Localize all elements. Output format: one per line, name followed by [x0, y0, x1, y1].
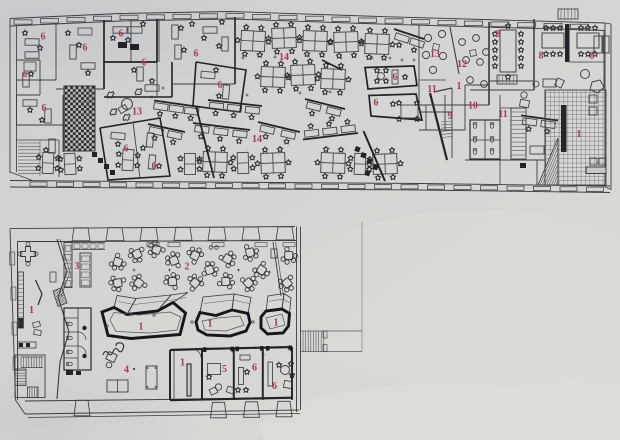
svg-text:8: 8 — [539, 51, 544, 62]
svg-text:10: 10 — [468, 101, 478, 112]
svg-text:3: 3 — [75, 261, 80, 272]
svg-text:6: 6 — [83, 43, 88, 54]
svg-text:1: 1 — [29, 305, 34, 316]
svg-text:13: 13 — [430, 49, 440, 60]
svg-text:6: 6 — [252, 363, 257, 374]
svg-text:8: 8 — [496, 29, 501, 40]
svg-text:12: 12 — [457, 59, 467, 70]
svg-text:6: 6 — [41, 32, 46, 43]
svg-text:5: 5 — [222, 364, 227, 375]
svg-text:6: 6 — [42, 103, 47, 114]
svg-text:6: 6 — [272, 381, 277, 392]
svg-text:1: 1 — [457, 81, 462, 92]
svg-text:6: 6 — [374, 98, 379, 109]
svg-text:1: 1 — [274, 318, 279, 329]
svg-text:6: 6 — [218, 80, 223, 91]
svg-text:6: 6 — [393, 72, 398, 83]
svg-text:4: 4 — [124, 365, 129, 376]
svg-text:6: 6 — [142, 58, 147, 69]
svg-text:1: 1 — [208, 319, 213, 330]
svg-text:6: 6 — [23, 69, 28, 79]
svg-text:2: 2 — [185, 262, 190, 273]
svg-text:13: 13 — [132, 107, 142, 118]
svg-text:11: 11 — [427, 84, 436, 95]
svg-text:14: 14 — [252, 134, 262, 145]
svg-text:14: 14 — [279, 52, 289, 63]
svg-text:1: 1 — [139, 322, 144, 333]
svg-text:6: 6 — [152, 161, 157, 172]
svg-text:9: 9 — [448, 111, 453, 122]
svg-text:6: 6 — [124, 144, 129, 155]
svg-text:1: 1 — [180, 358, 185, 369]
svg-text:6: 6 — [119, 29, 124, 40]
svg-text:1: 1 — [577, 129, 582, 140]
svg-text:6: 6 — [194, 49, 199, 60]
